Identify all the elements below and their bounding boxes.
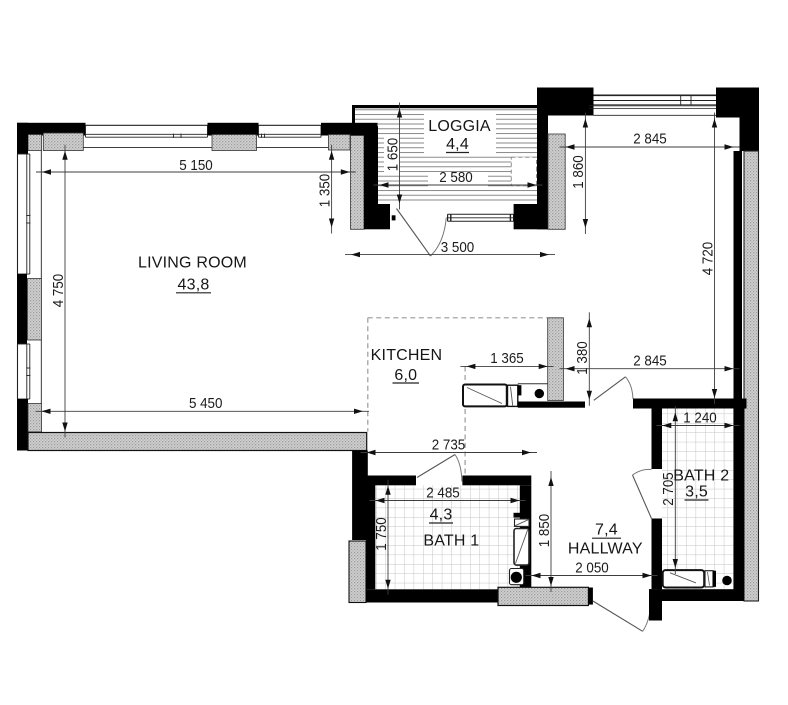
svg-text:3,5: 3,5 (685, 483, 708, 500)
svg-text:4 750: 4 750 (50, 274, 67, 308)
svg-text:LIVING ROOM: LIVING ROOM (138, 254, 247, 271)
svg-text:4,3: 4,3 (430, 506, 453, 523)
svg-text:43,8: 43,8 (178, 277, 210, 294)
svg-text:2 580: 2 580 (439, 169, 473, 186)
svg-text:1 365: 1 365 (490, 350, 524, 367)
svg-text:1 650: 1 650 (384, 138, 401, 172)
svg-text:2 845: 2 845 (633, 352, 667, 369)
svg-text:BATH 2: BATH 2 (673, 467, 729, 484)
svg-text:BATH 1: BATH 1 (423, 532, 479, 549)
svg-text:1 350: 1 350 (316, 174, 333, 208)
svg-text:HALLWAY: HALLWAY (568, 540, 643, 557)
svg-text:1 380: 1 380 (574, 341, 591, 375)
svg-text:1 860: 1 860 (570, 155, 587, 189)
svg-text:4 720: 4 720 (699, 242, 716, 276)
svg-text:2 735: 2 735 (432, 436, 466, 453)
svg-text:4,4: 4,4 (446, 136, 469, 153)
svg-text:KITCHEN: KITCHEN (371, 347, 443, 364)
svg-text:1 240: 1 240 (683, 409, 717, 426)
svg-text:5 150: 5 150 (179, 157, 213, 174)
svg-text:5 450: 5 450 (189, 395, 223, 412)
svg-text:1 850: 1 850 (536, 514, 553, 548)
svg-text:2 485: 2 485 (426, 484, 460, 501)
svg-text:1 750: 1 750 (373, 517, 390, 551)
svg-text:2 845: 2 845 (633, 131, 667, 148)
svg-text:6,0: 6,0 (394, 367, 417, 384)
svg-text:3 500: 3 500 (441, 239, 475, 256)
svg-text:LOGGIA: LOGGIA (428, 118, 491, 135)
svg-text:7,4: 7,4 (595, 522, 618, 539)
svg-text:2 050: 2 050 (575, 559, 609, 576)
